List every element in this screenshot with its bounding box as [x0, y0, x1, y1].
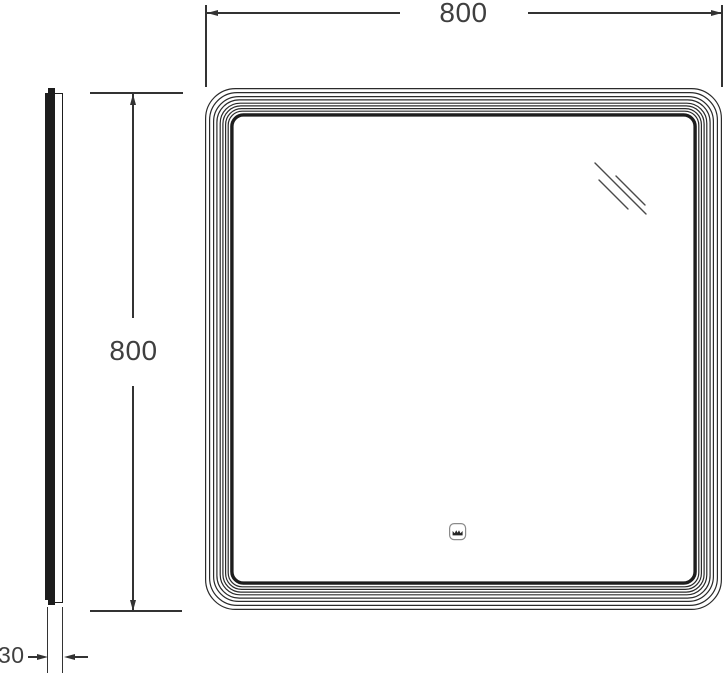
glass-reflection-marks — [595, 163, 646, 214]
height-dim-line-top — [132, 94, 133, 318]
side-view-glass-edge — [45, 88, 55, 605]
frame-line — [217, 100, 710, 598]
frame-line — [220, 103, 707, 595]
depth-arrow-left — [64, 654, 75, 660]
width-arrow-right — [711, 10, 722, 16]
depth-ext-line-left — [47, 607, 48, 673]
height-arrow-up — [130, 94, 136, 105]
frame-line — [228, 111, 699, 587]
reflection-line — [595, 163, 646, 214]
width-dimension-label: 800 — [420, 0, 507, 27]
height-dimension-label: 800 — [90, 337, 177, 365]
frame-line — [223, 106, 704, 592]
width-ext-line-right — [721, 5, 722, 87]
mirror-technical-drawing: 800 800 30 — [0, 0, 725, 673]
depth-dim-tail-right — [75, 656, 88, 657]
front-view — [205, 88, 723, 611]
height-dim-line-bottom — [132, 386, 133, 610]
frame-line — [226, 109, 702, 590]
width-ext-line-left — [205, 5, 206, 87]
touch-sensor-icon — [450, 524, 466, 540]
height-ext-line-top — [90, 92, 183, 93]
side-view-body-outline — [54, 93, 63, 603]
width-dim-line-right — [528, 12, 721, 13]
width-arrow-left — [207, 10, 218, 16]
depth-ext-line-right — [62, 607, 63, 673]
width-dim-line-left — [207, 12, 400, 13]
side-view-top-notch — [45, 88, 48, 93]
depth-dimension-label: 30 — [0, 644, 30, 666]
height-arrow-down — [130, 600, 136, 611]
depth-arrow-right — [37, 654, 48, 660]
side-view-bottom-notch — [45, 600, 48, 605]
height-ext-line-bottom — [90, 610, 182, 611]
